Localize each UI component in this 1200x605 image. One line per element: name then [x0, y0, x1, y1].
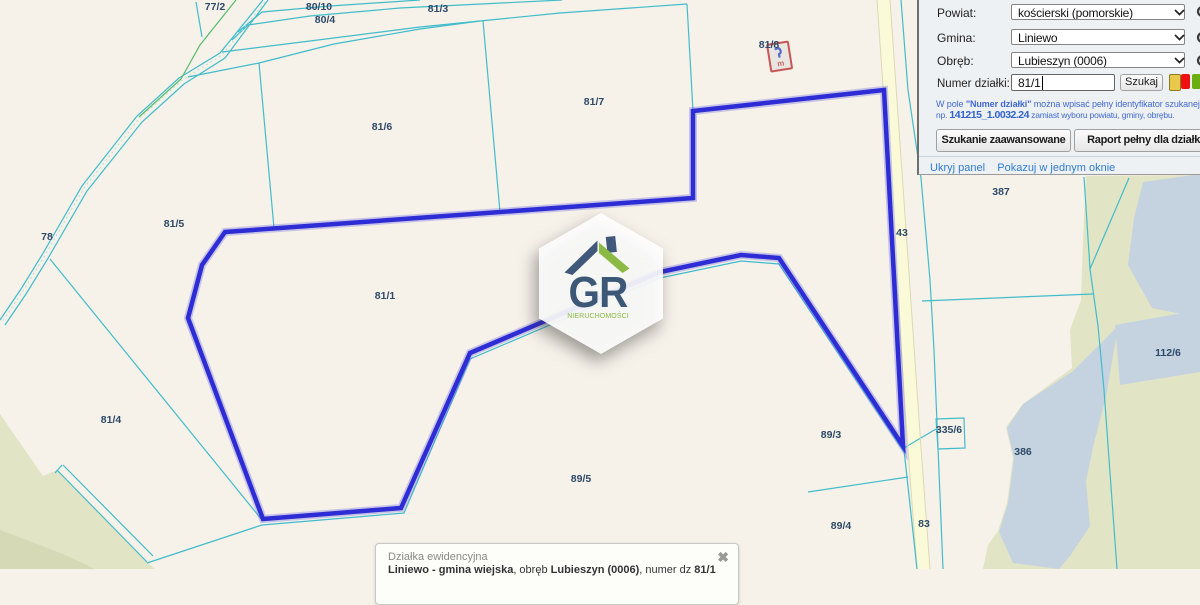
svg-text:43: 43 [896, 227, 908, 239]
svg-text:81/1: 81/1 [375, 290, 396, 302]
svg-text:89/5: 89/5 [571, 473, 592, 485]
svg-text:387: 387 [992, 186, 1010, 198]
svg-text:81/4: 81/4 [101, 414, 122, 426]
svg-text:89/4: 89/4 [831, 520, 852, 532]
svg-text:80/10: 80/10 [306, 1, 332, 13]
svg-text:83: 83 [918, 518, 930, 530]
svg-text:386: 386 [1014, 446, 1032, 458]
svg-text:80/4: 80/4 [315, 14, 336, 26]
svg-text:78: 78 [41, 231, 53, 243]
svg-text:GR: GR [569, 267, 628, 316]
svg-text:335/6: 335/6 [936, 424, 962, 436]
svg-text:81/3: 81/3 [428, 3, 449, 15]
svg-text:81/5: 81/5 [164, 218, 185, 230]
svg-text:81/6: 81/6 [372, 121, 393, 133]
svg-text:89/3: 89/3 [821, 429, 842, 441]
svg-text:112/6: 112/6 [1155, 347, 1181, 359]
svg-text:77/2: 77/2 [205, 1, 226, 13]
svg-text:81/7: 81/7 [584, 96, 605, 108]
svg-text:m: m [777, 58, 785, 68]
svg-text:NIERUCHOMOŚCI: NIERUCHOMOŚCI [567, 311, 629, 320]
svg-text:81/8: 81/8 [759, 39, 780, 51]
